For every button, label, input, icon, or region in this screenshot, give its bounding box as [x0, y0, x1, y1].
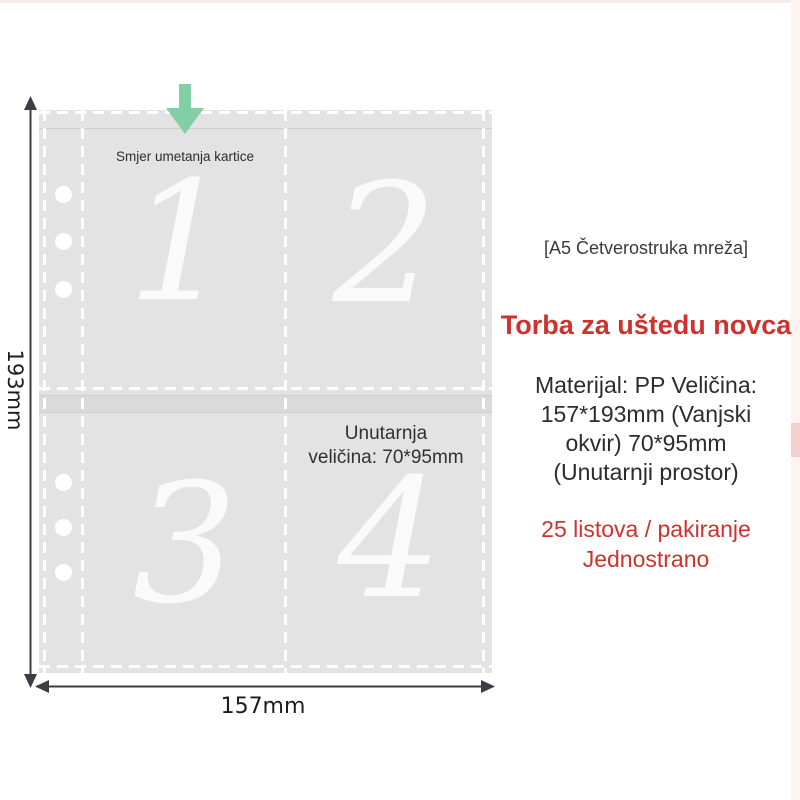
dashed-line-right [482, 110, 485, 673]
width-dimension-label: 157mm [221, 694, 306, 719]
dashed-line-top [39, 111, 492, 114]
inner-size-line-2: veličina: 70*95mm [276, 446, 496, 470]
inner-size-line-1: Unutarnja [276, 422, 496, 446]
spec-line-3: okvir) 70*95mm [497, 429, 795, 458]
pack-line-2: Jednostrano [497, 544, 795, 574]
middle-seam-band [39, 395, 492, 413]
binder-hole [55, 186, 72, 203]
binder-hole [55, 233, 72, 250]
spec-line-4: (Unutarnji prostor) [497, 458, 795, 487]
top-seam-line [39, 128, 492, 129]
packaging-info: 25 listova / pakiranje Jednostrano [497, 514, 795, 574]
product-specs: Materijal: PP Veličina: 157*193mm (Vanjs… [497, 371, 795, 487]
dashed-line-bottom [39, 665, 492, 668]
pocket-number-3: 3 [100, 462, 270, 627]
insert-direction-label: Smjer umetanja kartice [69, 149, 301, 164]
top-edge-accent [0, 0, 800, 3]
pocket-number-1: 1 [95, 160, 265, 325]
pack-line-1: 25 listova / pakiranje [497, 514, 795, 544]
dashed-line-middle [39, 387, 492, 390]
dashed-line-center [284, 110, 287, 673]
binder-hole [55, 474, 72, 491]
pocket-number-2: 2 [300, 162, 470, 327]
insert-direction-down-arrow-icon [164, 84, 206, 136]
inner-size-label: Unutarnja veličina: 70*95mm [276, 422, 496, 470]
product-title: Torba za uštedu novca [497, 310, 795, 341]
product-variant-tag: [A5 Četverostruka mreža] [497, 238, 795, 259]
binder-hole [55, 564, 72, 581]
sleeve-diagram: 1 2 3 4 Smjer umetanja kartice Unutarnja… [39, 110, 492, 673]
binder-hole [55, 281, 72, 298]
width-dimension-arrow-icon [35, 679, 495, 694]
binder-hole [55, 519, 72, 536]
spec-line-1: Materijal: PP Veličina: [497, 371, 795, 400]
height-dimension-label: 193mm [3, 350, 27, 431]
spec-line-2: 157*193mm (Vanjski [497, 400, 795, 429]
dashed-line-left-outer [43, 110, 46, 673]
pocket-number-4: 4 [305, 457, 475, 622]
dashed-line-left-inner [81, 110, 84, 673]
